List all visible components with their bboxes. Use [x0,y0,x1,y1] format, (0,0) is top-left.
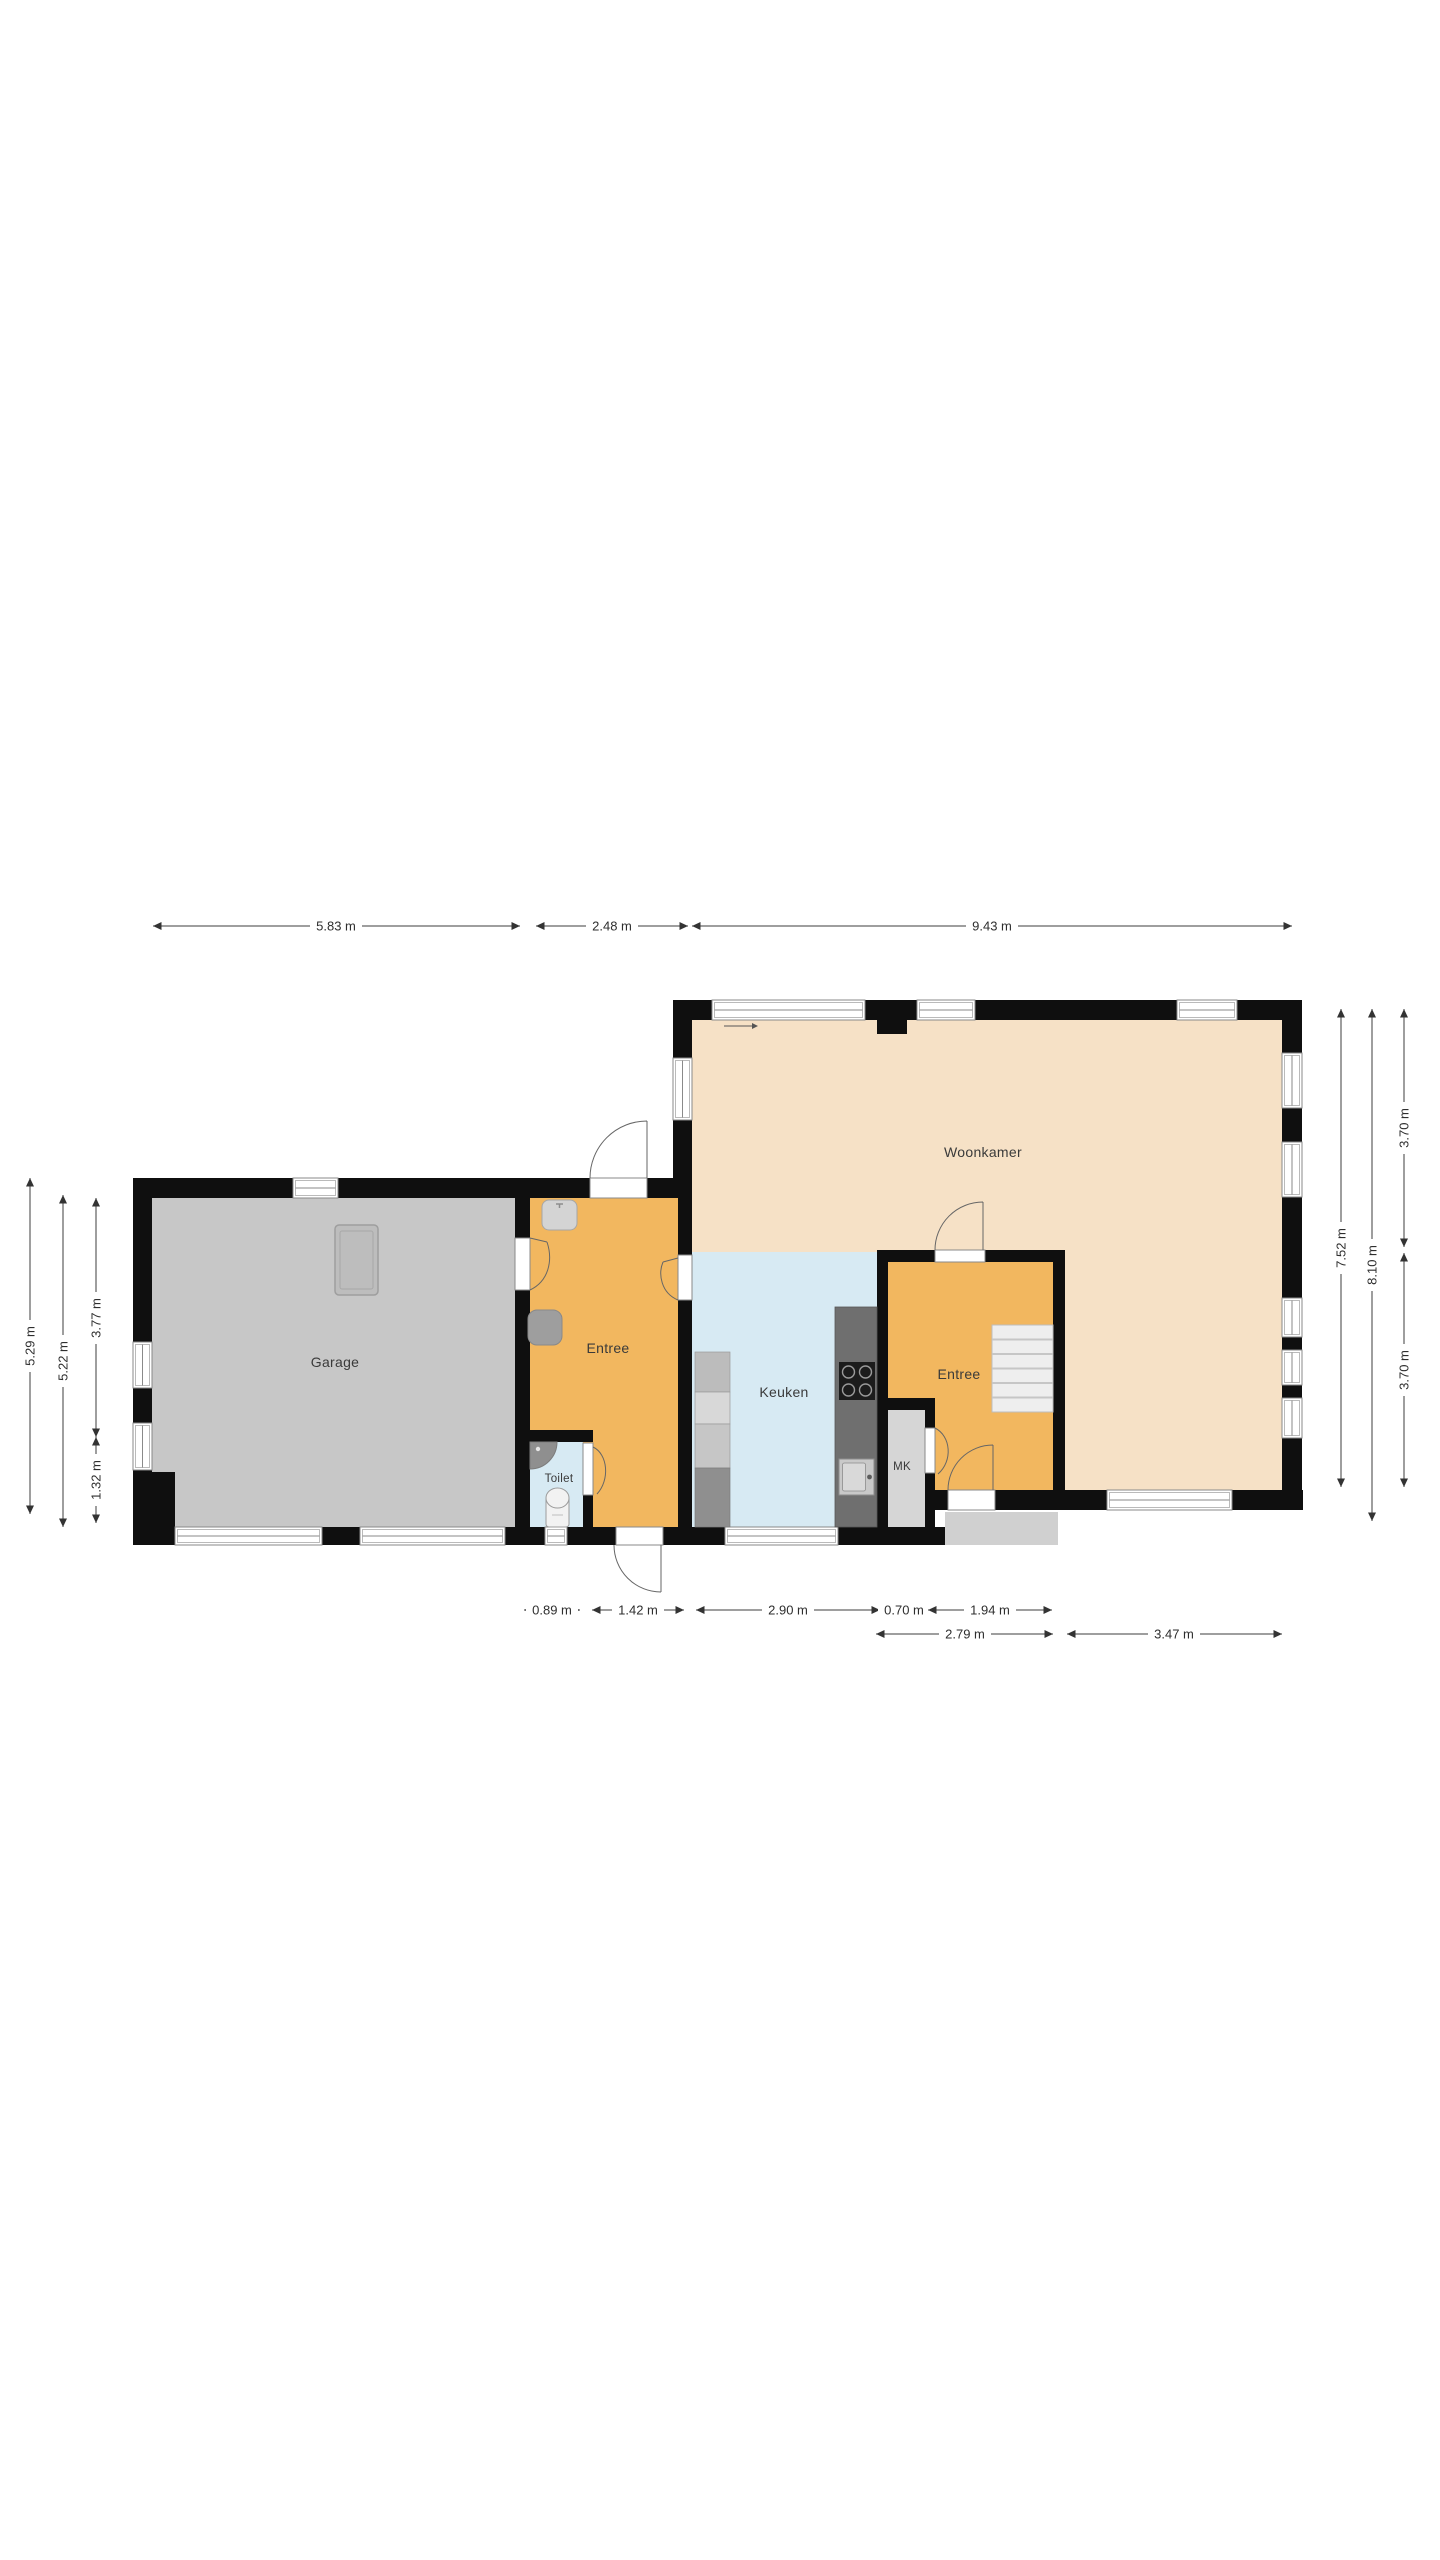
wall-segment [838,1527,945,1545]
kitchen-counter-right [835,1307,877,1527]
room-label-entree-rear: Entree [937,1366,980,1382]
wall-segment [877,1410,888,1527]
cooktop-icon [839,1362,875,1400]
dim-left-0-label: 5.29 m [23,1326,38,1366]
dim-top-0: 5.83 m [153,918,520,934]
door-entree-keuken [678,1255,692,1300]
door-entree-rear-outside [948,1490,995,1510]
dim-top-1: 2.48 m [536,918,688,934]
dim-bottom2-0-label: 2.79 m [945,1627,985,1642]
wall-segment [877,1398,935,1410]
garage-door-window-2 [360,1527,505,1545]
dim-top-1-label: 2.48 m [592,919,632,934]
dim-right-0: 7.52 m [1333,1009,1349,1487]
window-right-1 [1282,1053,1302,1108]
wall-segment [133,1388,152,1423]
entree-cabinet [528,1310,562,1345]
room-label-keuken: Keuken [759,1384,808,1400]
dim-left-3: 1.32 m [88,1437,104,1523]
window-woonkamer-bottom [1107,1490,1232,1510]
wall-segment [877,1262,888,1398]
dim-bottom1-2: 2.90 m [696,1602,880,1618]
wall-segment [673,1000,712,1020]
room-label-garage: Garage [311,1354,360,1370]
dim-bottom1-2-label: 2.90 m [768,1603,808,1618]
dim-right-2: 3.70 m [1396,1009,1412,1247]
wall-segment [1282,1020,1302,1053]
door-mk [925,1428,935,1473]
wall-segment [925,1410,935,1428]
window-garage-left-1 [133,1342,152,1388]
dim-bottom2-1-label: 3.47 m [1154,1627,1194,1642]
kitchen-counter-left [695,1352,730,1527]
dim-bottom1-1: 1.42 m [592,1602,684,1618]
wall-segment [1232,1490,1303,1510]
wall-segment [133,1178,152,1342]
window-woonkamer-top-3 [1177,1000,1237,1020]
window-garage-left-2 [133,1423,152,1470]
dim-bottom1-4: 1.94 m [928,1602,1052,1618]
dim-top-2: 9.43 m [692,918,1292,934]
wall-segment [1282,1385,1302,1398]
wall-segment [678,1198,692,1255]
wall-segment [975,1000,1177,1020]
wall-segment [583,1495,593,1527]
dim-bottom2-0: 2.79 m [876,1626,1053,1642]
room-floor-woonkamer-right [1065,1252,1282,1490]
dim-top-0-label: 5.83 m [316,919,356,934]
window-keuken-bottom [725,1527,838,1545]
kitchen-sink-icon [839,1459,874,1495]
staircase [992,1325,1053,1412]
dim-top-2-label: 9.43 m [972,919,1012,934]
wall-segment [865,1000,917,1020]
dim-right-3-label: 3.70 m [1397,1350,1412,1390]
dim-left-1: 5.22 m [55,1195,71,1527]
garage-door-window-1 [175,1527,322,1545]
window-toilet-bottom [545,1527,567,1545]
wall-segment [1053,1250,1065,1490]
window-right-5 [1282,1398,1302,1438]
door-swing-front-top [590,1121,647,1178]
wall-segment [663,1527,725,1545]
wall-segment [1282,1108,1302,1142]
dim-bottom2-1: 3.47 m [1067,1626,1282,1642]
dim-left-1-label: 5.22 m [56,1341,71,1381]
room-label-mk: MK [893,1461,911,1473]
dim-left-2: 3.77 m [88,1198,104,1437]
dim-right-2-label: 3.70 m [1397,1108,1412,1148]
wall-segment [985,1250,1065,1262]
floor-plan-page: Woonkamer Garage Entree Keuken Entree To… [0,0,1440,2560]
window-woonkamer-top-slider [712,1000,865,1020]
room-label-entree-main: Entree [586,1340,629,1356]
window-garage-top [293,1178,338,1198]
wall-segment [995,1490,1065,1510]
floor-plan-drawing: Woonkamer Garage Entree Keuken Entree To… [0,0,1440,2560]
wall-segment [877,1250,935,1262]
dim-right-1-label: 8.10 m [1365,1245,1380,1285]
wall-segment [925,1473,935,1527]
wall-segment [1282,1337,1302,1350]
wall-segment [678,1300,692,1527]
dim-bottom1-1-label: 1.42 m [618,1603,658,1618]
garage-hatch [335,1225,378,1295]
wall-segment [515,1198,530,1238]
dim-bottom1-4-label: 1.94 m [970,1603,1010,1618]
dim-left-2-label: 3.77 m [89,1298,104,1338]
wall-segment [673,1120,692,1198]
wall-segment [338,1178,590,1198]
washbasin-icon [542,1200,577,1230]
wall-segment [133,1472,175,1545]
dim-right-1: 8.10 m [1364,1009,1380,1521]
window-right-3 [1282,1298,1302,1337]
dim-right-3: 3.70 m [1396,1253,1412,1487]
door-front-top [590,1178,647,1198]
wall-segment [567,1527,616,1545]
door-garage-entree [515,1238,530,1290]
room-floor-woonkamer-top [692,1020,1282,1252]
dim-left-3-label: 1.32 m [89,1460,104,1500]
dim-bottom1-0: 0.89 m [524,1602,580,1618]
dim-bottom1-3: 0.70 m [878,1602,930,1618]
dim-bottom1-3-label: 0.70 m [884,1603,924,1618]
dim-left-0: 5.29 m [22,1178,38,1514]
wall-segment [1282,1197,1302,1298]
wall-segment [505,1527,545,1545]
wall-segment [322,1527,360,1545]
toilet-icon [546,1488,569,1527]
dim-bottom1-0-label: 0.89 m [532,1603,572,1618]
wall-segment [1065,1490,1107,1510]
window-woonkamer-top-2 [917,1000,975,1020]
wall-segment [515,1430,593,1442]
window-right-2 [1282,1142,1302,1197]
room-label-toilet: Toilet [545,1473,574,1485]
door-front-bottom [616,1527,663,1545]
wall-segment [1237,1000,1302,1020]
dim-right-0-label: 7.52 m [1334,1228,1349,1268]
wall-segment [133,1178,293,1198]
window-woonkamer-left [673,1058,692,1120]
window-right-4 [1282,1350,1302,1385]
door-swing-front-bottom [614,1545,661,1592]
porch-mat [945,1512,1058,1545]
door-toilet [583,1443,593,1495]
wall-segment [877,1020,907,1034]
door-entree-woonkamer [935,1250,985,1262]
room-label-woonkamer: Woonkamer [944,1144,1022,1160]
